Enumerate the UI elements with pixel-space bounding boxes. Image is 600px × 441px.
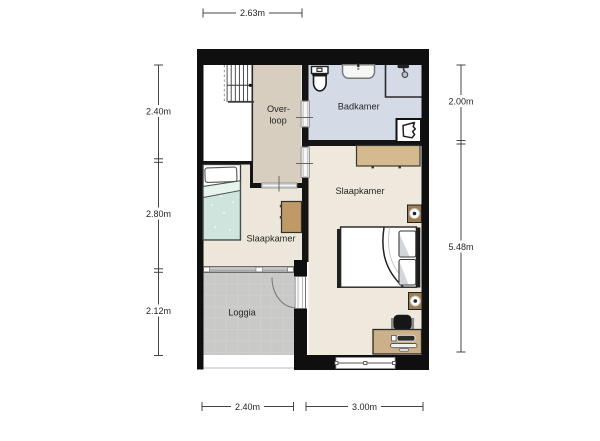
svg-text:2.00m: 2.00m [448,96,473,106]
svg-text:2.63m: 2.63m [240,8,265,18]
svg-text:Slaapkamer: Slaapkamer [335,186,384,196]
svg-text:5.48m: 5.48m [448,242,473,252]
svg-text:loop: loop [269,115,286,125]
svg-text:3.00m: 3.00m [352,402,377,412]
svg-text:Over-: Over- [267,104,290,114]
svg-text:2.80m: 2.80m [146,209,171,219]
svg-text:Badkamer: Badkamer [338,101,380,111]
svg-text:2.40m: 2.40m [146,106,171,116]
svg-text:Slaapkamer: Slaapkamer [246,234,295,244]
svg-text:2.40m: 2.40m [235,402,260,412]
svg-text:Loggia: Loggia [228,308,256,318]
svg-text:2.12m: 2.12m [146,306,171,316]
